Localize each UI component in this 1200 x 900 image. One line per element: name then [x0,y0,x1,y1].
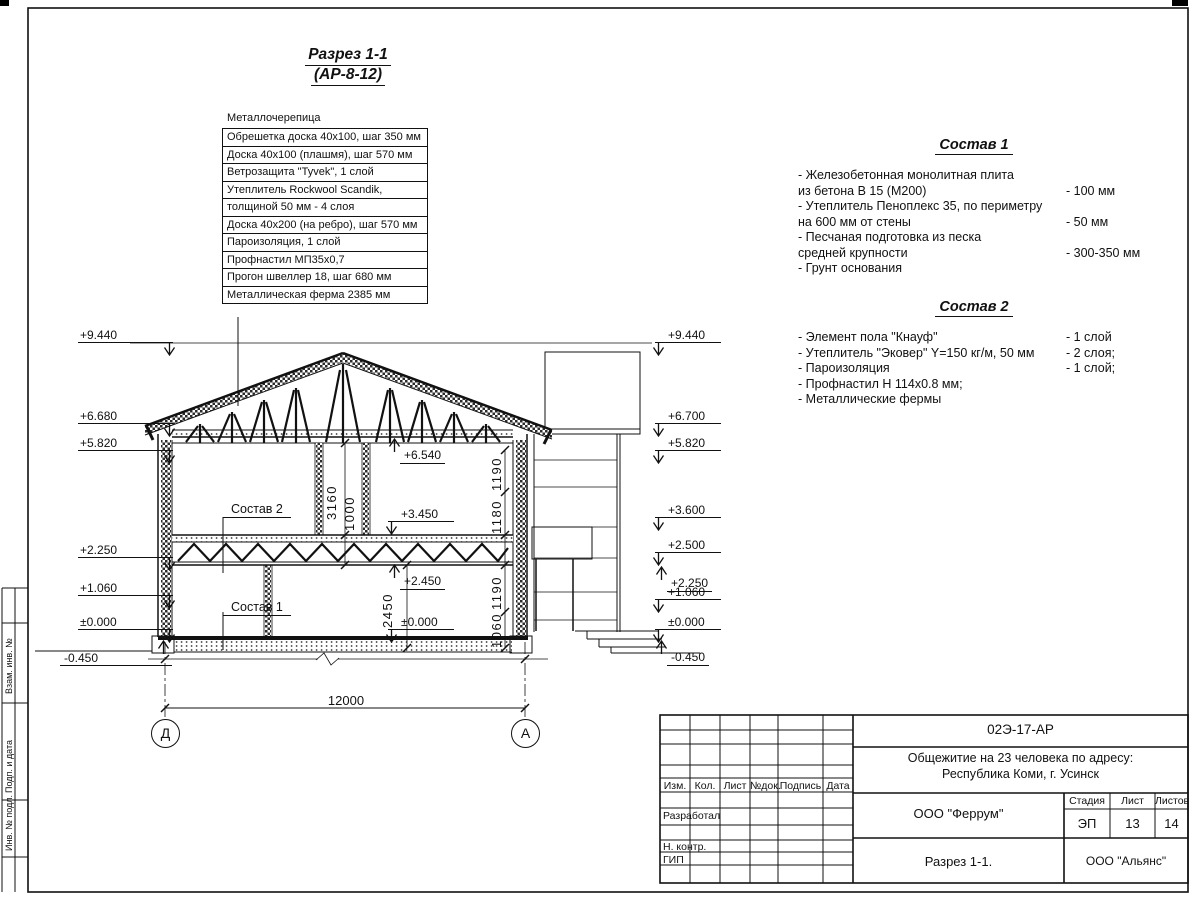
level-marker: +5.820 [78,436,173,451]
arrow-up-icon [157,640,170,654]
material-value: - 300-350 мм [1066,246,1140,262]
project-name-line1: Общежитие на 23 человека по адресу: [853,751,1188,765]
level-value: +6.540 [400,448,445,464]
material-item: - Пароизоляция- 1 слой; [798,361,1150,377]
level-marker: ±0.000 [78,615,173,630]
level-value: +9.440 [655,328,721,343]
sostav1-title: Состав 1 [935,137,1012,155]
level-value: +3.600 [655,503,721,518]
sostav1-items: - Железобетонная монолитная плита из бет… [798,168,1150,277]
level-marker: +2.450 [388,564,468,590]
roof-spec-row: Прогон швеллер 18, шаг 680 мм [222,269,428,287]
roof-spec-row: Обрешетка доска 40х100, шаг 350 мм [222,129,428,147]
titleblock-column-header: №док. [750,780,778,792]
arrow-up-icon [655,640,668,654]
level-marker: +9.440 [78,328,173,343]
material-item: - Песчаная подготовка из песка средней к… [798,230,1150,261]
arrow-down-icon [652,342,665,356]
level-value: +2.500 [655,538,721,553]
material-value: - 1 слой; [1066,361,1115,377]
vertical-dimension: 1060 [489,613,504,648]
org2-name: ООО "Альянс" [1064,854,1188,868]
vertical-dimension: 1000 [342,496,357,531]
level-value: +1.060 [655,585,721,600]
arrow-down-icon [163,423,176,437]
level-marker: +5.820 [655,436,721,451]
material-value: - 2 слоя; [1066,346,1115,362]
sheets-total: 14 [1155,816,1188,831]
level-marker: ±0.000 [388,615,454,630]
sostav2-items: - Элемент пола "Кнауф"- 1 слой- Утеплите… [798,330,1150,408]
roof-spec-row: Металлическая ферма 2385 мм [222,287,428,305]
arrow-down-icon [652,552,665,566]
level-value: +6.700 [655,409,721,424]
level-value: +6.680 [78,409,173,424]
section-subtitle: (АР-8-12) [311,66,385,86]
level-value: +2.250 [78,543,173,558]
arrow-down-icon [652,517,665,531]
level-marker: +9.440 [655,328,721,343]
level-marker: +1.060 [78,581,173,596]
roof-spec-row: Утеплитель Rockwool Scandik, [222,182,428,200]
arrow-up-icon [388,564,401,578]
material-item: - Элемент пола "Кнауф"- 1 слой [798,330,1150,346]
roof-spec-row: толщиной 50 мм - 4 слоя [222,199,428,217]
material-text: - Пароизоляция [798,361,1066,377]
level-marker: +3.450 [388,507,454,522]
level-value: +1.060 [78,581,173,596]
sostav1-block: Состав 1 - Железобетонная монолитная пли… [798,136,1150,277]
architectural-section-svg [0,0,1200,900]
arrow-down-icon [652,599,665,613]
material-value: - 50 мм [1066,215,1108,231]
span-dimension: 12000 [316,693,376,708]
roof-spec-row: Доска 40х100 (плашмя), шаг 570 мм [222,147,428,165]
material-text: - Элемент пола "Кнауф" [798,330,1066,346]
material-value: - 100 мм [1066,184,1115,200]
drawing-name: Разрез 1-1. [853,854,1064,869]
material-text: - Профнастил Н 114х0.8 мм; [798,377,1066,393]
material-item: - Грунт основания [798,261,1150,277]
level-marker: -0.450 [60,640,172,666]
level-value: +3.450 [388,507,454,522]
material-text: - Железобетонная монолитная плита из бет… [798,168,1066,199]
level-marker: +2.250 [78,543,173,558]
vertical-dimension: 1180 [489,500,504,534]
vertical-dimension: 1190 [489,576,504,610]
grid-axis-right: А [511,719,540,748]
roof-spec-row: Пароизоляция, 1 слой [222,234,428,252]
material-item: - Железобетонная монолитная плита из бет… [798,168,1150,199]
level-marker: +6.700 [655,409,721,424]
sheet-number: 13 [1110,816,1155,831]
titleblock-column-header: Кол. [690,780,720,792]
sostav2-title: Состав 2 [935,299,1012,317]
material-item: - Профнастил Н 114х0.8 мм; [798,377,1150,393]
level-value: +5.820 [78,436,173,451]
material-text: - Металлические фермы [798,392,1066,408]
project-name-line2: Республика Коми, г. Усинск [853,767,1188,781]
level-value: ±0.000 [78,615,173,630]
arrow-down-icon [385,629,398,643]
level-value: +9.440 [78,328,173,343]
material-value: - 1 слой [1066,330,1112,346]
arrow-down-icon [163,595,176,609]
sostav1-ref-label: Состав 1 [223,600,291,616]
material-item: - Металлические фермы [798,392,1150,408]
org-name: ООО "Феррум" [853,806,1064,821]
level-marker: +6.680 [78,409,173,424]
material-text: - Утеплитель Пеноплекс 35, по периметру … [798,199,1066,230]
roof-spec-row: Профнастил МП35х0,7 [222,252,428,270]
side-stamp-label: Взам. инв. № [4,638,14,694]
level-value: ±0.000 [388,615,454,630]
arrow-down-icon [163,342,176,356]
material-item: - Утеплитель Пеноплекс 35, по периметру … [798,199,1150,230]
sostav2-ref-label: Состав 2 [223,502,291,518]
level-value: -0.450 [60,651,172,666]
arrow-down-icon [652,450,665,464]
row-gip: ГИП [663,854,684,866]
arrow-down-icon [163,557,176,571]
roof-spec-row: Ветрозащита "Tyvek", 1 слой [222,164,428,182]
roof-spec-table: Металлочерепица Обрешетка доска 40х100, … [222,110,428,304]
roof-spec-title: Металлочерепица [222,110,428,128]
arrow-down-icon [652,423,665,437]
drawing-sheet: Разрез 1-1 (АР-8-12) Металлочерепица Обр… [0,0,1200,900]
side-stamp-label: Инв. № подл. [4,795,14,851]
titleblock-column-header: Изм. [660,780,690,792]
side-stamp-label: Подп. и дата [4,740,14,793]
titleblock-column-header: Подпись [778,780,823,792]
level-value: -0.450 [667,650,709,666]
roof-spec-row: Доска 40х200 (на ребро), шаг 570 мм [222,217,428,235]
level-marker: +6.540 [388,438,468,464]
level-marker: -0.450 [655,640,735,666]
row-developed: Разработал [663,810,720,822]
level-marker: +3.600 [655,503,721,518]
titleblock-column-header: Дата [823,780,853,792]
roof-spec-rows: Обрешетка доска 40х100, шаг 350 ммДоска … [222,128,428,304]
level-value: +2.450 [400,574,445,590]
sostav2-block: Состав 2 - Элемент пола "Кнауф"- 1 слой-… [798,298,1150,408]
sheets-label: Листов [1155,795,1188,807]
vertical-dimension: 2450 [380,593,395,628]
vertical-dimension: 3160 [324,485,339,520]
stage-value: ЭП [1064,816,1110,831]
arrow-down-icon [163,450,176,464]
material-text: - Грунт основания [798,261,1066,277]
sheet-label: Лист [1110,795,1155,807]
vertical-dimension: 1190 [489,457,504,491]
material-text: - Утеплитель "Эковер" Y=150 кг/м, 50 мм [798,346,1066,362]
sheet-title: Разрез 1-1 (АР-8-12) [278,46,418,86]
stage-label: Стадия [1064,795,1110,807]
level-marker: +2.500 [655,538,721,553]
level-marker: +1.060 [655,585,721,600]
material-text: - Песчаная подготовка из песка средней к… [798,230,1066,261]
arrow-up-icon [655,566,668,580]
material-item: - Утеплитель "Эковер" Y=150 кг/м, 50 мм-… [798,346,1150,362]
doc-code: 02Э-17-АР [853,722,1188,737]
level-marker: ±0.000 [655,615,721,630]
arrow-down-icon [385,521,398,535]
row-ncontr: Н. контр. [663,841,706,853]
section-title: Разрез 1-1 [305,46,391,66]
level-value: ±0.000 [655,615,721,630]
titleblock-column-header: Лист [720,780,750,792]
grid-axis-left: Д [151,719,180,748]
arrow-up-icon [388,438,401,452]
level-value: +5.820 [655,436,721,451]
